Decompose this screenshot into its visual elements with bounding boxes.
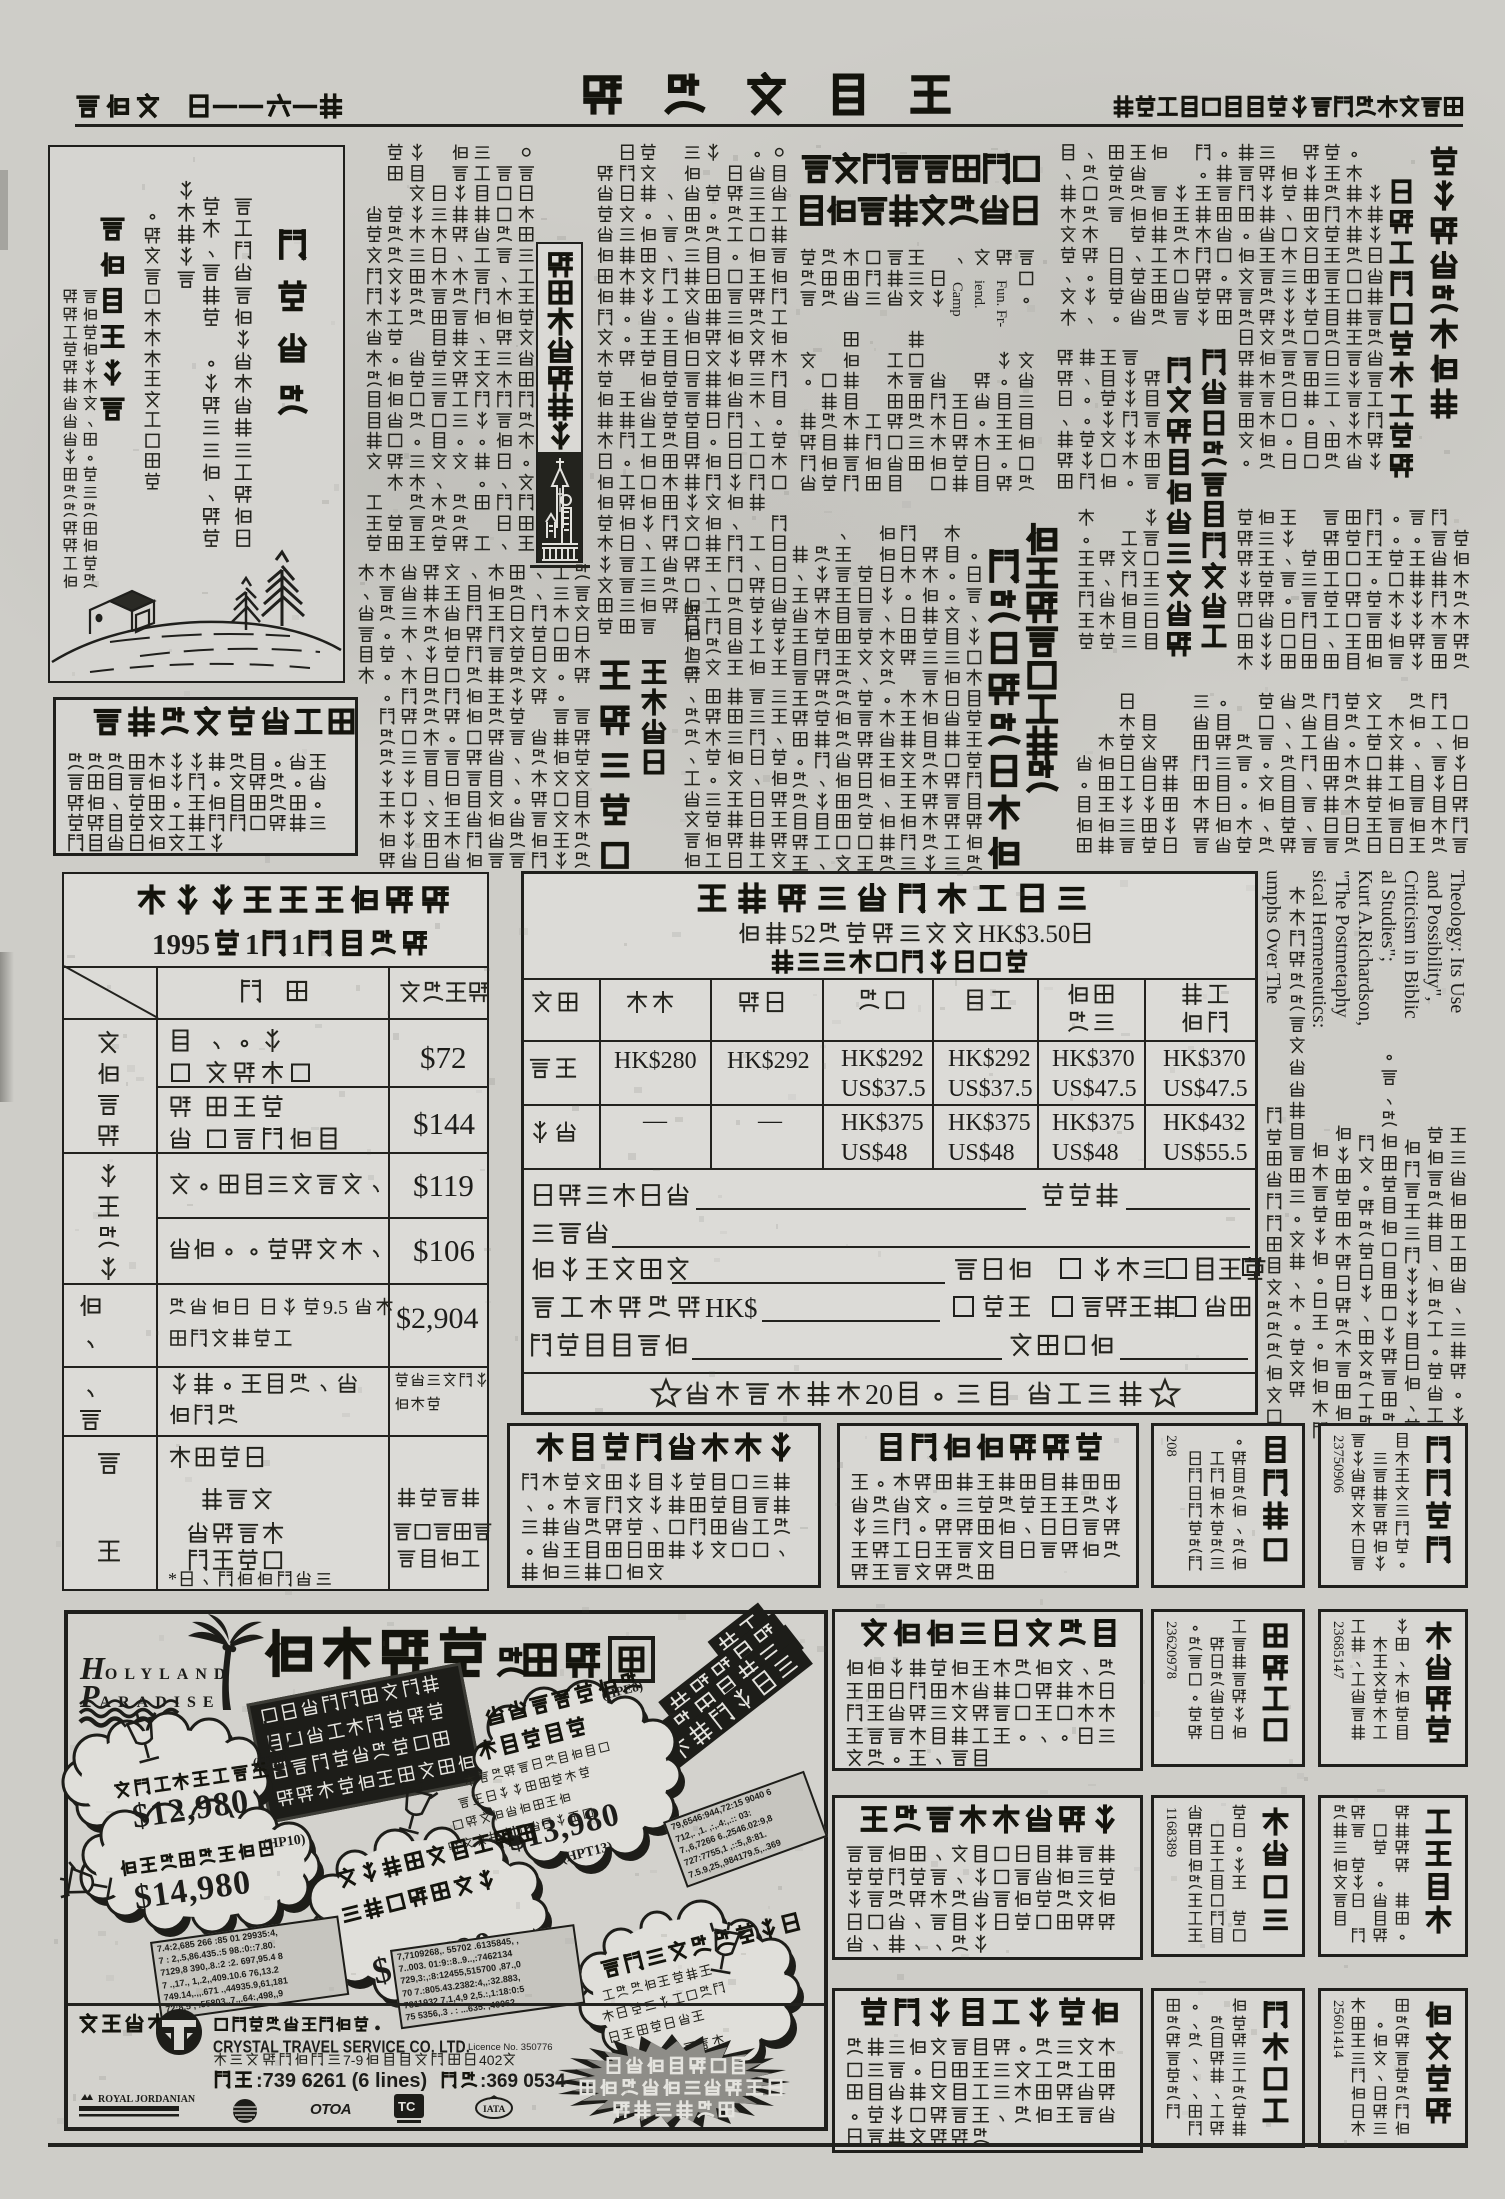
svg-text:IATA: IATA [483,2105,505,2115]
svg-text:1: 1 [291,929,306,961]
svg-text:TC: TC [398,2099,416,2114]
svg-text:7-9: 7-9 [343,2052,363,2068]
svg-text::739 6261 (6 lines): :739 6261 (6 lines) [256,2070,427,2092]
svg-text:9.5: 9.5 [323,1297,348,1319]
svg-text:*: * [168,1569,177,1589]
svg-text:HK$3.50: HK$3.50 [978,921,1070,948]
svg-text:HK$: HK$ [705,1293,758,1323]
svg-text:402: 402 [479,2052,503,2068]
svg-text:52: 52 [791,921,816,948]
svg-text:1995: 1995 [152,929,210,961]
svg-text:1: 1 [245,929,260,961]
svg-text:20: 20 [865,1380,893,1411]
svg-text:ROYAL JORDANIAN: ROYAL JORDANIAN [98,2094,196,2105]
